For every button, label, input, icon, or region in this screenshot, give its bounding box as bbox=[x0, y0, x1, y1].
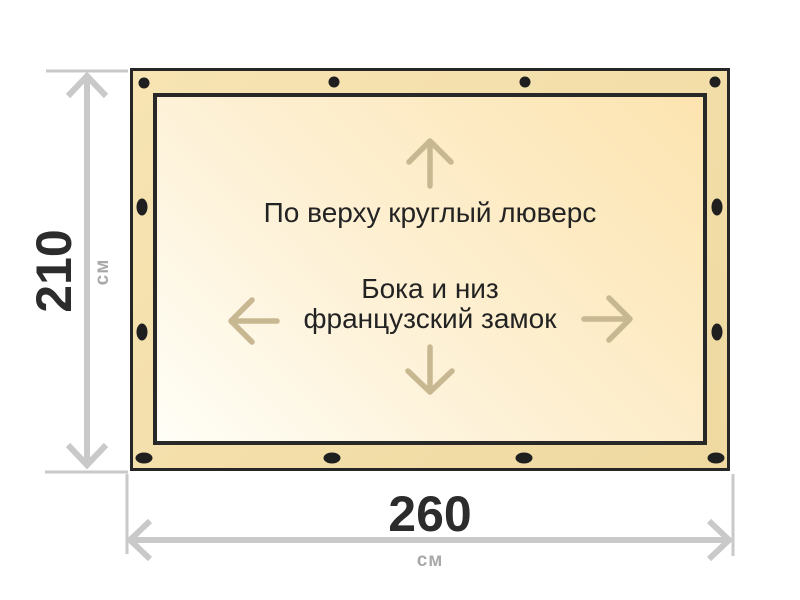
height-value: 210 bbox=[29, 201, 83, 341]
arrowhead-up-icon bbox=[68, 76, 106, 96]
sides-annotation-line2: французский замок bbox=[130, 304, 730, 334]
height-unit: см bbox=[93, 242, 115, 302]
top-edge-annotation: По верху круглый люверс bbox=[130, 198, 730, 228]
tarp-dimension-diagram: По верху круглый люверс Бока и низ франц… bbox=[0, 0, 800, 600]
sides-annotation: Бока и низ французский замок bbox=[130, 274, 730, 334]
arrowhead-down-icon bbox=[68, 445, 106, 465]
sides-annotation-line1: Бока и низ bbox=[130, 274, 730, 304]
width-value: 260 bbox=[130, 489, 730, 539]
width-unit: см bbox=[130, 551, 730, 571]
tarp-outer-panel bbox=[130, 68, 730, 471]
tarp-inner-panel bbox=[153, 93, 707, 445]
